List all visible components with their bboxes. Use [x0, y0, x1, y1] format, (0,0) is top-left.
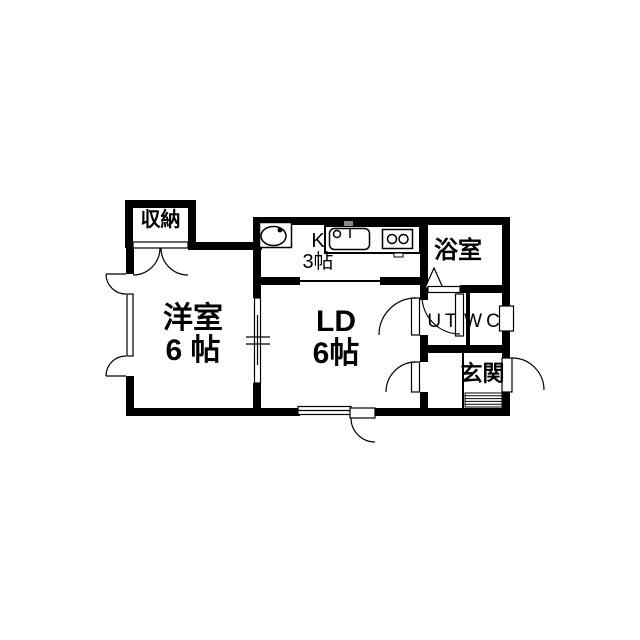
bath-threshold [428, 287, 460, 293]
wall-bottom-left [126, 408, 300, 416]
wall-k-ld-left [255, 277, 300, 285]
line-k-ld-opening [300, 280, 380, 282]
living-dining-name: LD [286, 306, 386, 338]
window-left-bottom-arc [106, 356, 126, 376]
counter-tab-top [344, 221, 353, 226]
western-room-label: 洋室 6 帖 [138, 303, 248, 367]
storage-door-arc-right [161, 248, 188, 275]
western-room-size: 6 帖 [138, 335, 248, 367]
storage-door-arc-left [133, 248, 160, 275]
storage-door-line [133, 242, 188, 248]
wall-ut-bottom [420, 345, 510, 353]
wall-right-b [502, 331, 510, 358]
kitchen-name: K [288, 231, 348, 252]
entrance-door-arc [512, 358, 544, 390]
hall-door-leaf [412, 362, 420, 392]
entrance-label: 玄関 [460, 362, 505, 385]
window-left-fixed-pane [127, 294, 133, 356]
toilet-label: WC [464, 312, 504, 332]
living-dining-size: 6帖 [286, 338, 386, 370]
storage-label: 収納 [131, 210, 190, 231]
window-left-top-arc [106, 274, 126, 294]
utility-label: UT [424, 312, 464, 332]
counter-tab-bottom [394, 253, 403, 257]
entrance-doormat [465, 393, 502, 407]
wall-left-upper [126, 248, 134, 274]
kitchen-label: K 3帖 [288, 231, 348, 273]
ld-balcony-door-leaf [350, 408, 375, 418]
floorplan-canvas: 収納 洋室 6 帖 K 3帖 LD 6帖 浴室 UT WC 玄関 [0, 0, 640, 640]
ld-balcony-door-arc [351, 418, 375, 442]
wall-ld-right-c [420, 392, 428, 408]
wall-storage-top [125, 200, 196, 208]
wall-bath-bottom [460, 285, 510, 293]
ut-door-leaf [412, 298, 420, 335]
washbasin-icon [260, 223, 292, 248]
wall-right-c [502, 392, 510, 416]
two-burner-stove-icon [383, 230, 413, 249]
wall-bottom-right [374, 408, 510, 416]
western-room-name: 洋室 [138, 303, 248, 335]
bathroom-label: 浴室 [425, 238, 491, 263]
wall-west-top [188, 242, 262, 250]
wall-ld-right-a [420, 293, 428, 300]
kitchen-size: 3帖 [288, 252, 348, 273]
living-dining-label: LD 6帖 [286, 306, 386, 370]
